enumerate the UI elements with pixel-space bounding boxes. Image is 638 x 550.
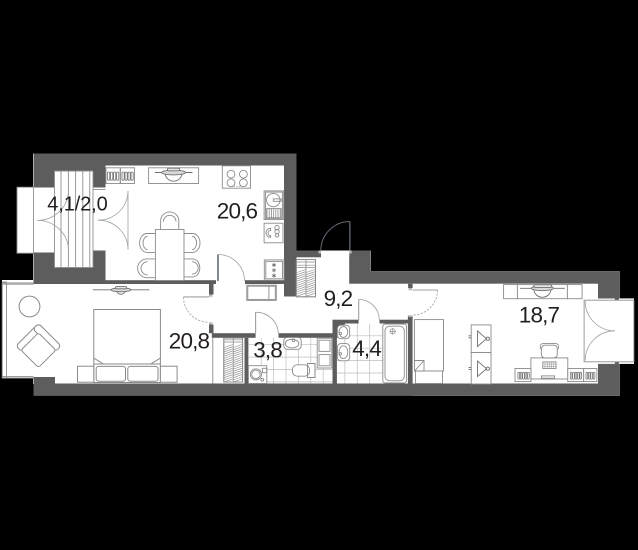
svg-text:4,4: 4,4 [352,336,381,361]
svg-text:4,1/2,0: 4,1/2,0 [47,193,107,215]
svg-text:20,8: 20,8 [169,328,210,353]
svg-text:20,6: 20,6 [217,198,258,223]
svg-text:9,2: 9,2 [324,286,353,311]
svg-text:3,8: 3,8 [253,337,282,362]
svg-text:18,7: 18,7 [519,303,560,328]
